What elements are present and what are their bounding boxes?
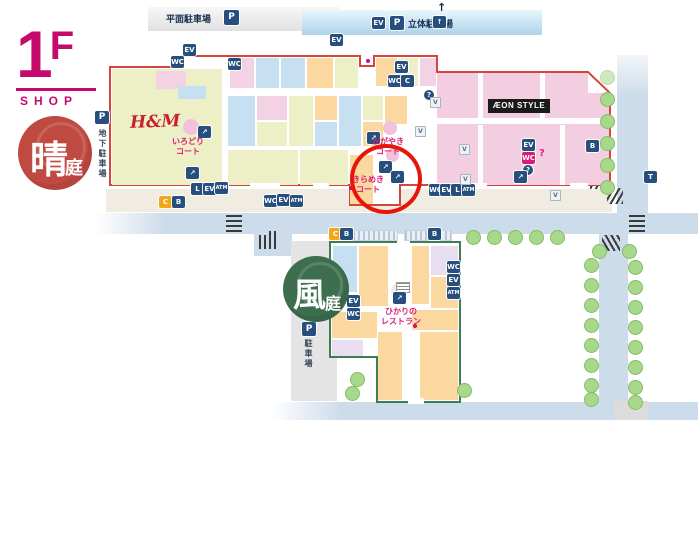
elevator-icon: EV bbox=[372, 17, 385, 29]
tree-icon bbox=[584, 392, 599, 407]
bicycle-icon: B bbox=[172, 196, 185, 208]
store-aeon-area[interactable] bbox=[437, 73, 588, 185]
tenant-block[interactable] bbox=[359, 246, 388, 306]
store-aeon-label[interactable]: ÆON STYLE bbox=[488, 99, 550, 113]
tenant-block[interactable] bbox=[332, 340, 363, 356]
tenant-block[interactable] bbox=[315, 122, 337, 146]
kaze-niwa-badge: 風 庭 bbox=[283, 256, 349, 322]
tree-icon bbox=[457, 383, 472, 398]
irodori-court-label: いろどり コート bbox=[158, 137, 218, 156]
escalator-icon: ↗ bbox=[393, 292, 406, 304]
elevator-icon: EV bbox=[347, 295, 360, 307]
tenant-block[interactable] bbox=[257, 122, 287, 146]
hare-kanji: 晴 bbox=[30, 129, 68, 184]
kirameki-highlight-circle bbox=[350, 144, 422, 214]
entrance-gap bbox=[570, 183, 588, 188]
corridor bbox=[402, 332, 420, 400]
tenant-block[interactable] bbox=[385, 96, 407, 124]
corridor bbox=[478, 73, 483, 118]
location-dot bbox=[413, 324, 417, 328]
toilet-icon: WC bbox=[388, 75, 401, 87]
tree-icon bbox=[584, 258, 599, 273]
irodori-court-circle bbox=[183, 119, 199, 135]
bicycle-icon: B bbox=[340, 228, 353, 240]
tree-icon bbox=[600, 158, 615, 173]
tenant-block[interactable] bbox=[307, 58, 333, 88]
irodori-line1: いろどり bbox=[172, 137, 204, 146]
elevator-icon: EV bbox=[330, 34, 343, 46]
atm-icon: ATM bbox=[447, 287, 460, 299]
south-parking-label: 駐車場 bbox=[303, 339, 314, 373]
tree-icon bbox=[487, 230, 502, 245]
tree-icon bbox=[628, 320, 643, 335]
tree-icon bbox=[466, 230, 481, 245]
hare-niwa-badge: 晴 庭 bbox=[18, 116, 92, 190]
tree-icon bbox=[529, 230, 544, 245]
tree-icon bbox=[600, 92, 615, 107]
entrance-gap bbox=[313, 183, 329, 188]
entrance-gap bbox=[408, 398, 424, 404]
tree-icon bbox=[584, 378, 599, 393]
cart-icon: C bbox=[159, 196, 172, 208]
location-dot bbox=[366, 59, 370, 63]
tree-icon bbox=[628, 380, 643, 395]
parking-icon: P bbox=[95, 111, 109, 124]
tree-icon bbox=[622, 244, 637, 259]
tenant-block[interactable] bbox=[363, 96, 383, 120]
tree-icon bbox=[628, 395, 643, 410]
kaze-sub-kanji: 庭 bbox=[325, 290, 341, 314]
entrance-gap bbox=[250, 183, 280, 188]
restaurant-line1: ひかりの bbox=[385, 307, 417, 316]
floor-map-1f: EV EV P 立体駐車場 ↑ ↑ 平面駐車場 P EV WC WC ↗ ↗ L… bbox=[0, 0, 698, 544]
tree-icon bbox=[628, 340, 643, 355]
tree-icon bbox=[584, 358, 599, 373]
tenant-block[interactable] bbox=[300, 150, 348, 185]
elevator-icon: EV bbox=[447, 274, 460, 286]
cart-icon: C bbox=[401, 75, 414, 87]
toilet-icon: WC bbox=[347, 308, 360, 320]
store-hm-label[interactable]: H&M bbox=[130, 111, 181, 133]
tree-icon bbox=[628, 280, 643, 295]
tenant-block[interactable] bbox=[339, 96, 361, 146]
floor-logo: 1F SHOP bbox=[16, 24, 102, 107]
elevator-icon: EV bbox=[522, 139, 535, 151]
vending-icon: V bbox=[430, 97, 441, 108]
vending-icon: V bbox=[460, 174, 471, 185]
tree-icon bbox=[628, 360, 643, 375]
bicycle-icon: B bbox=[586, 140, 599, 152]
vending-icon: V bbox=[415, 126, 426, 137]
toilet-icon: WC bbox=[447, 261, 460, 273]
tree-icon bbox=[584, 278, 599, 293]
parking-icon: P bbox=[302, 322, 316, 336]
question-mark-icon: ? bbox=[539, 149, 545, 159]
tree-icon bbox=[345, 386, 360, 401]
corridor bbox=[478, 125, 483, 185]
kagayaki-court-circle bbox=[383, 121, 397, 135]
taxi-icon: T bbox=[644, 171, 657, 183]
toilet-icon: WC bbox=[228, 58, 241, 70]
atm-icon: ATM bbox=[215, 182, 228, 194]
escalator-icon: ↗ bbox=[514, 171, 527, 183]
deck-parking-label: 立体駐車場 bbox=[408, 20, 453, 29]
tenant-block[interactable] bbox=[281, 58, 305, 88]
tenant-block[interactable] bbox=[412, 246, 429, 304]
tree-icon bbox=[600, 136, 615, 151]
tree-icon bbox=[592, 244, 607, 259]
restaurant-label: ひかりの レストラン bbox=[372, 307, 430, 326]
tenant-block[interactable] bbox=[257, 96, 287, 120]
tree-icon bbox=[508, 230, 523, 245]
tree-icon bbox=[550, 230, 565, 245]
bicycle-icon: B bbox=[428, 228, 441, 240]
tree-icon bbox=[584, 298, 599, 313]
tenant-block[interactable] bbox=[420, 58, 436, 86]
parking-icon: P bbox=[390, 16, 404, 30]
parking-icon: P bbox=[224, 10, 239, 25]
tenant-block[interactable] bbox=[315, 96, 337, 120]
vending-icon: V bbox=[459, 144, 470, 155]
atm-icon: ATM bbox=[462, 184, 475, 196]
tree-icon bbox=[600, 180, 615, 195]
tree-icon bbox=[600, 114, 615, 129]
toilet-icon: WC bbox=[264, 195, 277, 207]
corridor bbox=[437, 118, 609, 124]
vending-icon: V bbox=[550, 190, 561, 201]
kaze-kanji: 風 bbox=[293, 268, 326, 316]
tree-icon bbox=[600, 70, 615, 85]
atm-icon: ATM bbox=[290, 195, 303, 207]
corridor bbox=[560, 125, 565, 185]
ramp-icon: ↑ bbox=[433, 16, 446, 28]
tree-icon bbox=[584, 318, 599, 333]
irodori-line2: コート bbox=[176, 147, 200, 156]
toilet-icon: WC bbox=[522, 152, 535, 164]
tenant-block[interactable] bbox=[289, 96, 313, 146]
floor-shop-label: SHOP bbox=[20, 95, 102, 107]
elevator-icon: EV bbox=[395, 61, 408, 73]
toilet-icon: WC bbox=[171, 56, 184, 68]
escalator-icon: ↗ bbox=[186, 167, 199, 179]
bicycle-parking-strip bbox=[352, 230, 398, 241]
tenant-block[interactable] bbox=[228, 96, 255, 146]
tenant-block[interactable] bbox=[228, 150, 298, 185]
tenant-block[interactable] bbox=[335, 58, 358, 88]
tree-icon bbox=[350, 372, 365, 387]
tenant-block[interactable] bbox=[178, 86, 206, 99]
underground-parking-label: 地下駐車場 bbox=[97, 129, 108, 197]
tree-icon bbox=[628, 300, 643, 315]
elevator-icon: EV bbox=[183, 44, 196, 56]
tree-icon bbox=[584, 338, 599, 353]
hare-sub-kanji: 庭 bbox=[65, 154, 83, 180]
floor-number: 1F bbox=[16, 24, 102, 84]
flat-parking-label: 平面駐車場 bbox=[166, 15, 211, 24]
tree-icon bbox=[628, 260, 643, 275]
elevator-icon: EV bbox=[277, 194, 290, 206]
tenant-block[interactable] bbox=[256, 58, 279, 88]
up-arrow-icon: ↑ bbox=[437, 2, 446, 13]
